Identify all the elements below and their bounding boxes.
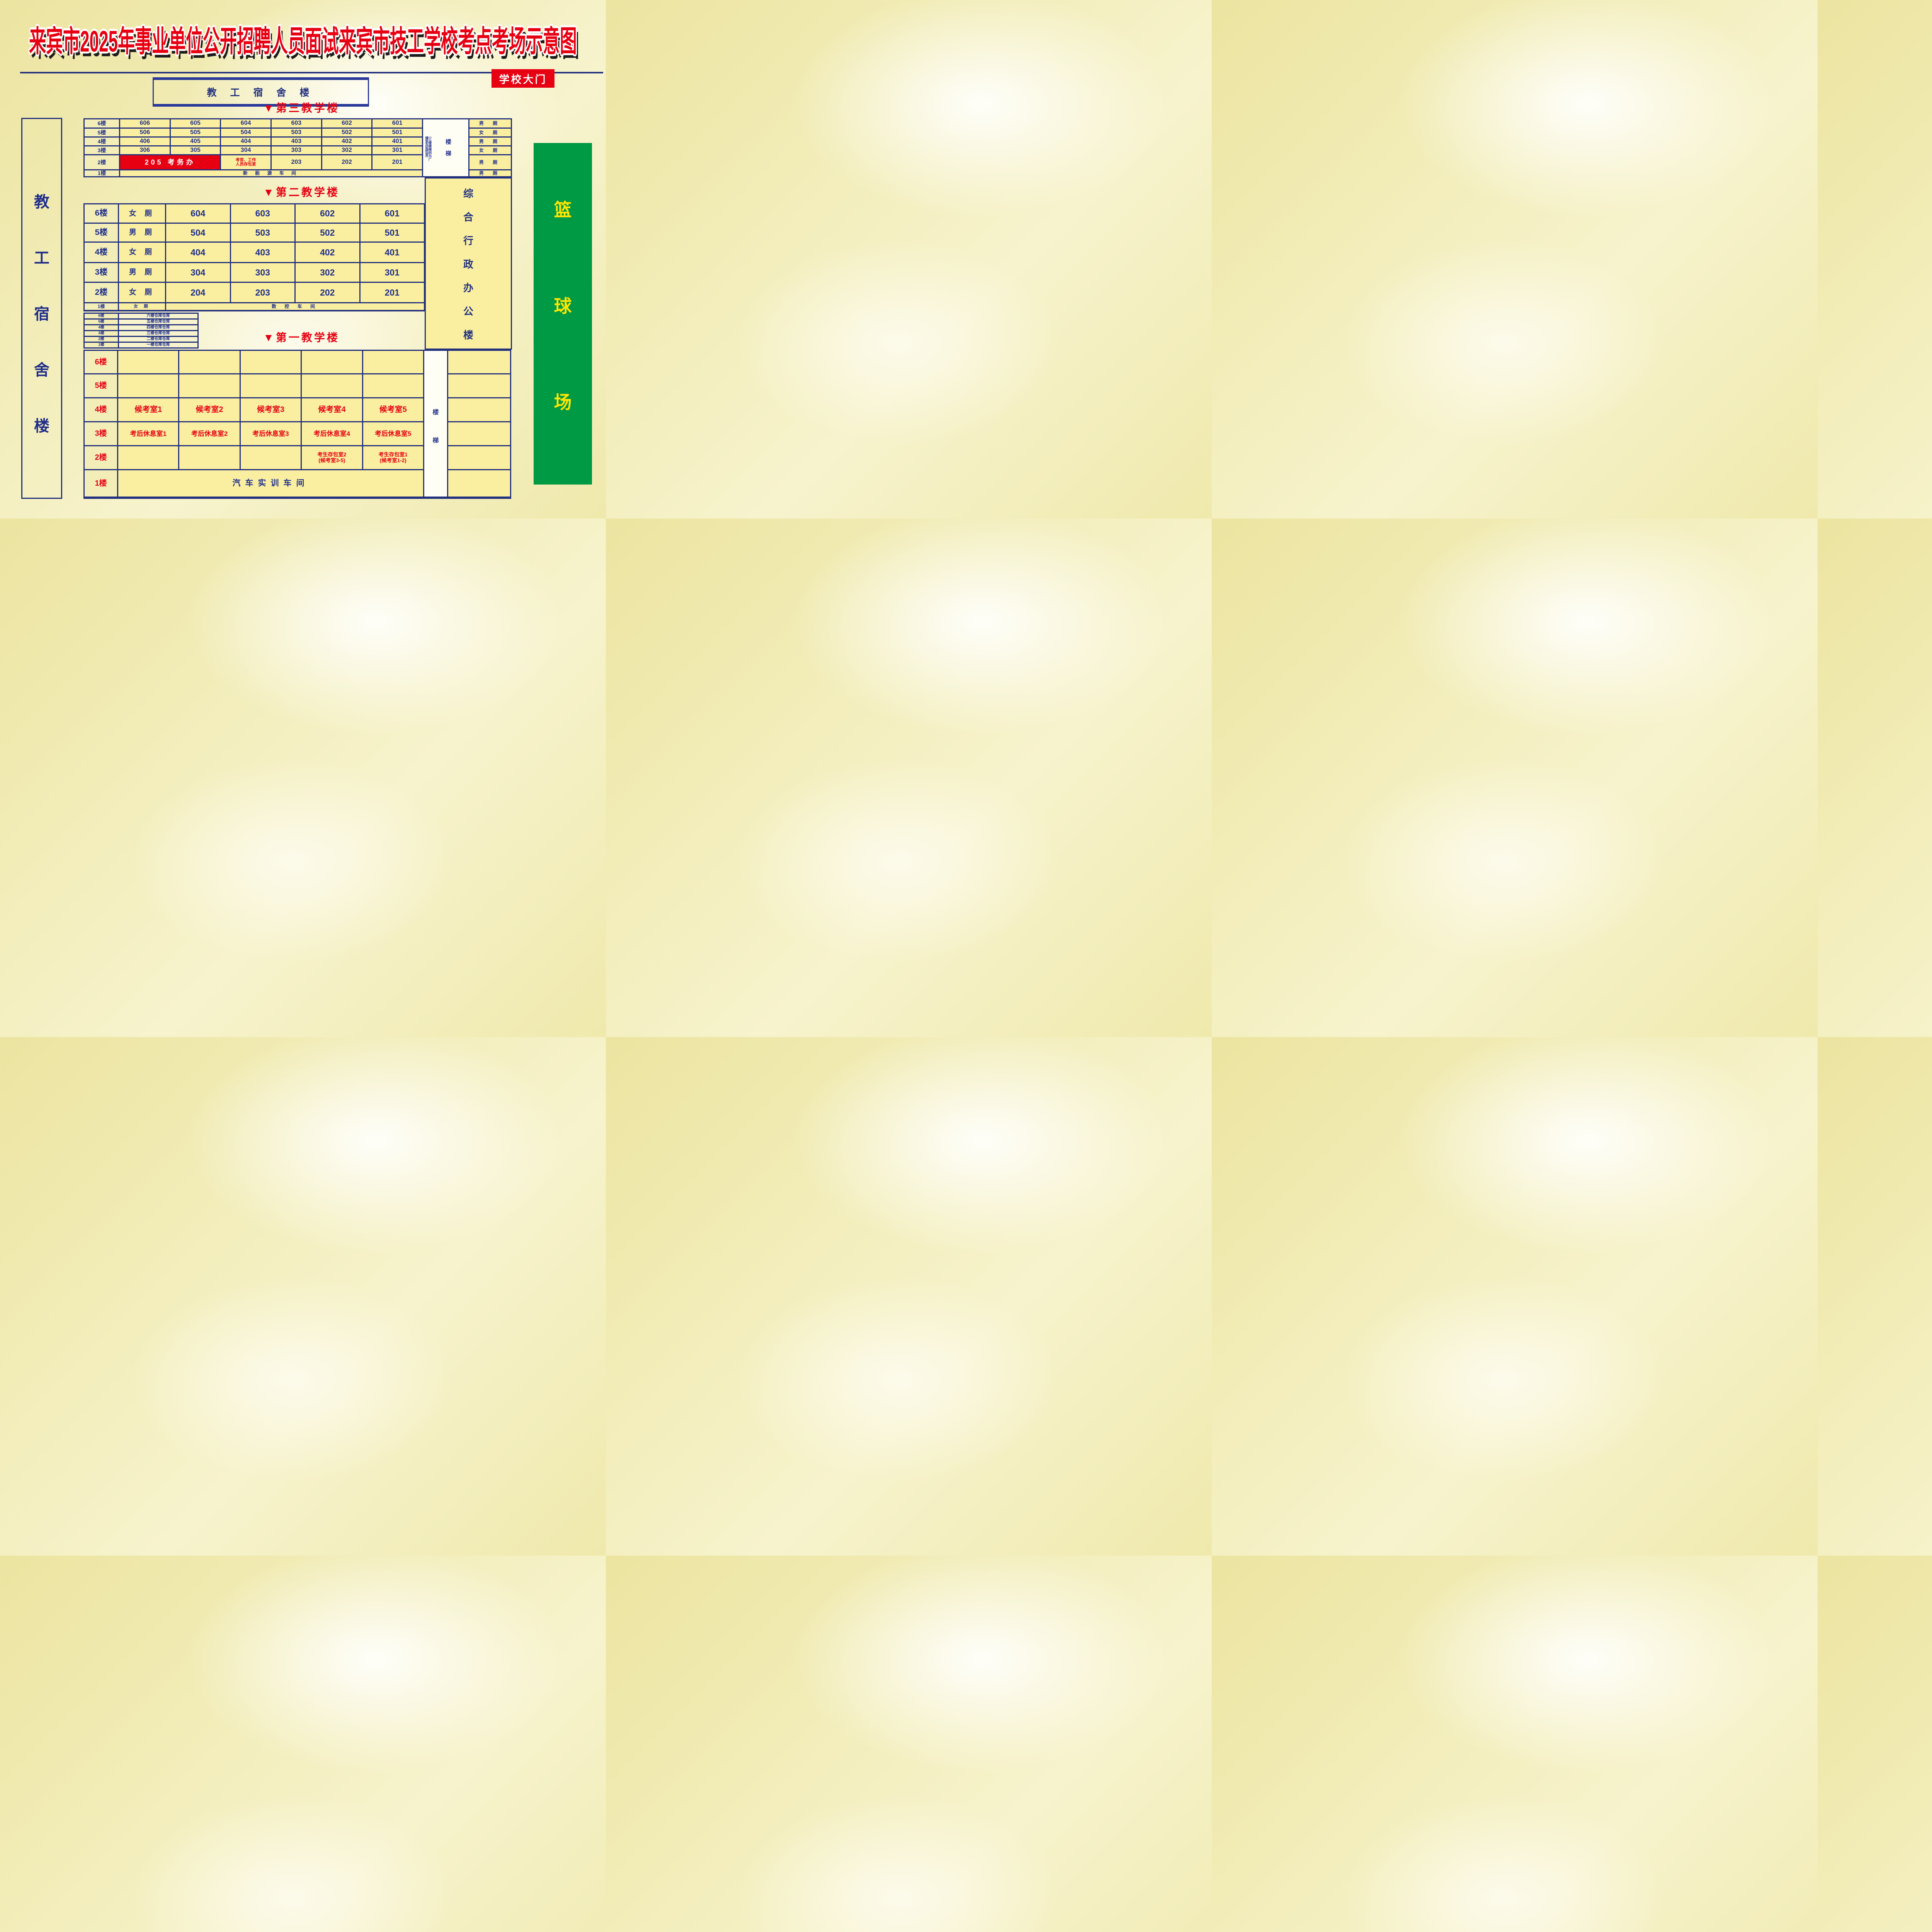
building2-header: ▼第二教学楼 bbox=[220, 184, 383, 199]
empty-room-cell bbox=[302, 374, 362, 397]
admin-char: 公 bbox=[463, 304, 473, 318]
room-cell: 203 bbox=[231, 283, 295, 302]
rest-room-cell: 考后休息室3 bbox=[241, 422, 301, 445]
room-cell: 604 bbox=[221, 119, 270, 128]
room-cell: 503 bbox=[231, 224, 295, 241]
empty-room-cell bbox=[118, 374, 178, 397]
warehouse-cell: 六楼仓库仓库 bbox=[119, 314, 197, 318]
room-cell: 303 bbox=[272, 146, 321, 154]
room-cell: 604 bbox=[166, 204, 230, 223]
waiting-room-cell: 候考室4 bbox=[302, 398, 362, 421]
rest-room-cell: 考后休息室4 bbox=[302, 422, 362, 445]
floor-label: 3楼 bbox=[85, 146, 119, 154]
room-cell: 302 bbox=[322, 146, 372, 154]
room-cell: 404 bbox=[166, 243, 230, 262]
empty-room-cell bbox=[241, 374, 301, 397]
empty-room-cell bbox=[448, 374, 510, 397]
toilet-cell: 男 厕 bbox=[119, 224, 165, 241]
empty-room-cell bbox=[179, 446, 239, 469]
toilet-cell: 女 厕 bbox=[119, 204, 165, 223]
empty-room-cell bbox=[363, 351, 423, 373]
staff-storage-cell: 考官、工作 人员存包室 bbox=[221, 155, 270, 169]
room-cell: 504 bbox=[221, 129, 270, 136]
room-cell: 202 bbox=[322, 155, 372, 169]
exam-office-cell: 205 考务办 bbox=[120, 155, 220, 169]
toilet-cell: 男 厕 bbox=[469, 138, 511, 145]
admin-char: 办 bbox=[463, 280, 473, 294]
building1-table: 楼 梯 6楼 5楼 4楼 候考室1 候考室2 候考室3 候考室4 候考室5 3楼… bbox=[83, 350, 511, 499]
workshop-cell: 汽车实训车间 bbox=[118, 470, 423, 497]
empty-room-cell bbox=[118, 351, 178, 373]
floor-label: 4楼 bbox=[85, 138, 119, 145]
room-cell: 202 bbox=[296, 283, 359, 302]
building3-stair-note: （三楼楼梯间为广播室及监控室） bbox=[425, 134, 432, 162]
poster-title-text: 来宾市2025年事业单位公开招聘人员面试来宾市技工学校考点考场示意图 bbox=[29, 17, 577, 60]
stairs-icon: 楼 梯 bbox=[446, 139, 451, 157]
room-cell: 502 bbox=[296, 224, 359, 241]
storage-line1: 考生存包室1 bbox=[379, 452, 408, 457]
empty-room-cell bbox=[179, 374, 239, 397]
floor-label: 3楼 bbox=[85, 263, 118, 282]
room-cell: 401 bbox=[361, 243, 424, 262]
room-cell: 302 bbox=[296, 263, 359, 282]
room-cell: 204 bbox=[166, 283, 230, 302]
room-cell: 601 bbox=[372, 119, 422, 128]
storage-line2: (候考室1-2) bbox=[380, 458, 406, 463]
floor-label: 3楼 bbox=[85, 422, 117, 445]
room-cell: 601 bbox=[361, 204, 424, 223]
room-cell: 203 bbox=[272, 155, 321, 169]
room-cell: 506 bbox=[120, 129, 170, 136]
room-cell: 603 bbox=[231, 204, 295, 223]
stair-char: 楼 bbox=[446, 139, 451, 145]
building3-header: ▼第三教学楼 bbox=[220, 100, 383, 115]
room-cell: 402 bbox=[322, 138, 372, 145]
floor-label: 5楼 bbox=[85, 224, 118, 241]
storage-line1: 考生存包室2 bbox=[317, 452, 346, 457]
admin-char: 综 bbox=[463, 186, 473, 200]
waiting-room-cell: 候考室1 bbox=[118, 398, 178, 421]
rest-room-cell: 考后休息室1 bbox=[118, 422, 178, 445]
empty-room-cell bbox=[118, 446, 178, 469]
basketball-court: 篮 球 场 bbox=[534, 143, 592, 485]
room-cell: 602 bbox=[296, 204, 359, 223]
room-cell: 404 bbox=[221, 138, 270, 145]
floor-label: 1楼 bbox=[85, 303, 118, 310]
floor-label: 4楼 bbox=[85, 325, 118, 330]
candidate-storage-cell: 考生存包室2 (候考室3-5) bbox=[302, 446, 362, 469]
workshop-cell: 新 能 源 车 间 bbox=[120, 170, 422, 176]
admin-char: 政 bbox=[463, 257, 473, 271]
room-cell: 406 bbox=[120, 138, 170, 145]
toilet-cell: 女 厕 bbox=[119, 303, 165, 310]
admin-building-label: 综 合 行 政 办 公 楼 bbox=[463, 186, 473, 342]
floor-label: 1楼 bbox=[85, 470, 117, 497]
staff-storage-line2: 人员存包室 bbox=[236, 162, 256, 167]
room-cell: 303 bbox=[231, 263, 295, 282]
room-cell: 605 bbox=[171, 119, 220, 128]
room-cell: 306 bbox=[120, 146, 170, 154]
empty-room-cell bbox=[448, 422, 510, 445]
room-cell: 403 bbox=[231, 243, 295, 262]
warehouse-cell: 三楼仓库仓库 bbox=[119, 331, 197, 336]
building3-stairwell: （三楼楼梯间为广播室及监控室） 楼 梯 bbox=[423, 119, 468, 176]
room-cell: 606 bbox=[120, 119, 170, 128]
building2-table: 6楼 女 厕 604 603 602 601 5楼 男 厕 504 503 50… bbox=[83, 203, 425, 311]
empty-room-cell bbox=[448, 446, 510, 469]
room-cell: 405 bbox=[171, 138, 220, 145]
room-cell: 201 bbox=[361, 283, 424, 302]
room-cell: 201 bbox=[372, 155, 422, 169]
court-char: 球 bbox=[554, 297, 572, 315]
dorm-char: 楼 bbox=[34, 418, 49, 434]
room-cell: 305 bbox=[171, 146, 220, 154]
room-cell: 402 bbox=[296, 243, 359, 262]
storage-line2: (候考室3-5) bbox=[318, 458, 345, 463]
dorm-char: 舍 bbox=[34, 362, 49, 378]
room-cell: 401 bbox=[372, 138, 422, 145]
floor-label: 2楼 bbox=[85, 446, 117, 469]
room-cell: 505 bbox=[171, 129, 220, 136]
room-cell: 504 bbox=[166, 224, 230, 241]
floor-label: 3楼 bbox=[85, 331, 118, 336]
floor-label: 5楼 bbox=[85, 374, 117, 397]
floor-label: 4楼 bbox=[85, 398, 117, 421]
dorm-char: 工 bbox=[34, 250, 49, 266]
floor-label: 2楼 bbox=[85, 283, 118, 302]
toilet-cell: 男 厕 bbox=[469, 170, 511, 176]
waiting-room-cell: 候考室3 bbox=[241, 398, 301, 421]
waiting-room-cell: 候考室5 bbox=[363, 398, 423, 421]
toilet-cell: 男 厕 bbox=[469, 155, 511, 169]
empty-room-cell bbox=[241, 351, 301, 373]
room-cell: 501 bbox=[361, 224, 424, 241]
court-char: 场 bbox=[554, 393, 572, 411]
school-gate-label: 学校大门 bbox=[492, 69, 554, 88]
stairs-icon: 楼 梯 bbox=[432, 410, 439, 444]
room-cell: 502 bbox=[322, 129, 372, 136]
floor-label: 5楼 bbox=[85, 129, 119, 136]
floor-label: 2楼 bbox=[85, 155, 119, 169]
dorm-char: 宿 bbox=[34, 306, 49, 322]
room-cell: 503 bbox=[272, 129, 321, 136]
admin-char: 行 bbox=[463, 233, 473, 247]
floor-label: 6楼 bbox=[85, 119, 119, 128]
toilet-cell: 男 厕 bbox=[119, 263, 165, 282]
warehouse-cell: 五楼仓库仓库 bbox=[119, 320, 197, 324]
room-cell: 301 bbox=[372, 146, 422, 154]
floor-label: 6楼 bbox=[85, 351, 117, 373]
admin-char: 楼 bbox=[463, 327, 473, 342]
building3-table: （三楼楼梯间为广播室及监控室） 楼 梯 6楼 606 605 604 603 6… bbox=[83, 118, 512, 177]
empty-room-cell bbox=[241, 446, 301, 469]
court-char: 篮 bbox=[554, 201, 572, 219]
warehouse-cell: 一楼仓库仓库 bbox=[119, 343, 197, 347]
toilet-cell: 女 厕 bbox=[119, 243, 165, 262]
room-cell: 603 bbox=[272, 119, 321, 128]
floor-label: 4楼 bbox=[85, 243, 118, 262]
staff-dorm-building: 教 工 宿 舍 楼 bbox=[21, 118, 62, 499]
exam-venue-map: { "title": "来宾市2025年事业单位公开招聘人员面试来宾市技工学校考… bbox=[0, 0, 606, 519]
warehouse-cell: 四楼仓库仓库 bbox=[119, 325, 197, 330]
waiting-room-cell: 候考室2 bbox=[179, 398, 239, 421]
empty-room-cell bbox=[302, 351, 362, 373]
toilet-cell: 女 厕 bbox=[469, 129, 511, 136]
rest-room-cell: 考后休息室5 bbox=[363, 422, 423, 445]
warehouse-cell: 二楼仓库仓库 bbox=[119, 337, 197, 342]
room-cell: 304 bbox=[221, 146, 270, 154]
toilet-cell: 男 厕 bbox=[469, 119, 511, 128]
admin-char: 合 bbox=[463, 209, 473, 224]
room-cell: 304 bbox=[166, 263, 230, 282]
floor-label: 2楼 bbox=[85, 337, 118, 342]
warehouse-table: 6楼 六楼仓库仓库 5楼 五楼仓库仓库 4楼 四楼仓库仓库 3楼 三楼仓库仓库 … bbox=[83, 313, 199, 349]
floor-label: 1楼 bbox=[85, 170, 119, 176]
floor-label: 1楼 bbox=[85, 343, 118, 347]
floor-label: 6楼 bbox=[85, 314, 118, 318]
building1-stairwell: 楼 梯 bbox=[424, 351, 447, 497]
stair-char: 梯 bbox=[446, 151, 451, 157]
toilet-cell: 女 厕 bbox=[119, 283, 165, 302]
stair-char: 梯 bbox=[432, 438, 439, 444]
floor-label: 6楼 bbox=[85, 204, 118, 223]
stair-char: 楼 bbox=[432, 410, 439, 416]
empty-room-cell bbox=[448, 470, 510, 497]
admin-building: 综 合 行 政 办 公 楼 bbox=[425, 177, 512, 350]
empty-room-cell bbox=[448, 351, 510, 373]
room-cell: 602 bbox=[322, 119, 372, 128]
workshop-cell: 数 控 车 间 bbox=[166, 303, 424, 310]
dorm-char: 教 bbox=[34, 194, 49, 210]
rest-room-cell: 考后休息室2 bbox=[179, 422, 239, 445]
building1-header: ▼第一教学楼 bbox=[220, 329, 383, 345]
empty-room-cell bbox=[179, 351, 239, 373]
empty-room-cell bbox=[448, 398, 510, 421]
floor-label: 5楼 bbox=[85, 320, 118, 324]
candidate-storage-cell: 考生存包室1 (候考室1-2) bbox=[363, 446, 423, 469]
empty-room-cell bbox=[363, 374, 423, 397]
room-cell: 301 bbox=[361, 263, 424, 282]
poster-title: 来宾市2025年事业单位公开招聘人员面试来宾市技工学校考点考场示意图 bbox=[21, 12, 585, 66]
toilet-cell: 女 厕 bbox=[469, 146, 511, 154]
room-cell: 403 bbox=[272, 138, 321, 145]
room-cell: 501 bbox=[372, 129, 422, 136]
